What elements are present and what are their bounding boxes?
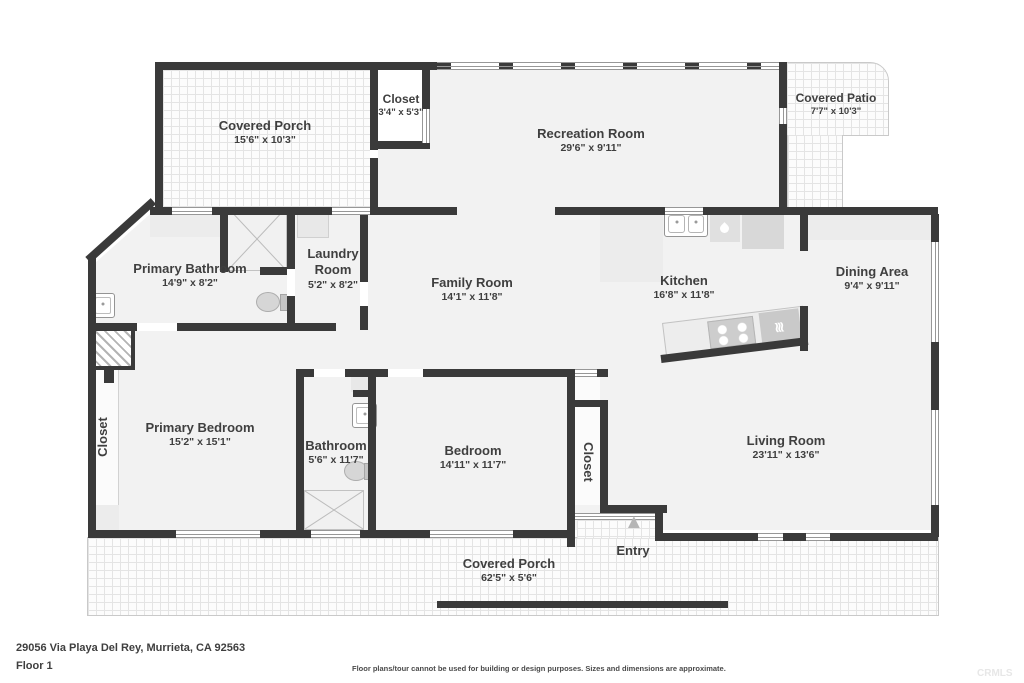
room-label-kitchen: Kitchen 16'8" x 11'8" (634, 273, 734, 302)
bathtub-icon (304, 490, 364, 530)
closet-cabinet (96, 505, 119, 531)
wall (567, 505, 575, 547)
wall (423, 369, 575, 377)
watermark: CRMLS (977, 668, 1013, 679)
wall (800, 207, 808, 251)
window (176, 530, 260, 538)
window (931, 410, 939, 505)
wall (104, 369, 114, 383)
floor-label: Floor 1 (16, 660, 53, 672)
patio-edge (842, 135, 888, 136)
door-opening (388, 369, 423, 377)
toilet-icon (256, 292, 280, 312)
kitchen-counter (600, 215, 663, 282)
wall (600, 407, 608, 508)
cooktop-waves-icon: ≋ (770, 320, 788, 334)
room-label-closet-bedroom: Closet (580, 430, 596, 494)
wall (555, 207, 667, 215)
wall (513, 530, 575, 538)
refrigerator-icon (742, 215, 784, 249)
window (806, 533, 830, 541)
wall (177, 323, 294, 331)
wall (655, 533, 938, 541)
window (311, 530, 360, 538)
window (430, 530, 513, 538)
room-label-primary-bathroom: Primary Bathroom 14'9" x 8'2" (90, 261, 290, 290)
wall (575, 400, 608, 407)
door-opening (370, 150, 378, 158)
door-opening (314, 369, 345, 377)
wall (703, 207, 938, 215)
wall (597, 369, 608, 377)
window (931, 242, 939, 342)
wall (88, 530, 176, 538)
covered-patio-tile (787, 135, 842, 207)
wall (931, 342, 939, 410)
wall (155, 62, 438, 70)
wall (88, 258, 96, 530)
entry-arrow-icon: ▲ (624, 512, 644, 532)
window (665, 207, 703, 215)
window (758, 533, 783, 541)
room-label-family-room: Family Room 14'1" x 11'8" (372, 275, 572, 304)
wall (88, 323, 137, 331)
room-label-covered-porch-bottom: Covered Porch 62'5" x 5'6" (409, 556, 609, 585)
floor-plan: ≋ ▲ Covered Porch 15'6" x 10'3" Closet 3… (0, 0, 1024, 683)
window (575, 369, 597, 377)
room-label-laundry-room: Laundry Room 5'2" x 8'2" (293, 246, 373, 292)
patio-edge (842, 135, 843, 207)
wall (353, 390, 376, 397)
dining-cabinets (808, 215, 931, 240)
window (172, 207, 212, 215)
wall (345, 369, 388, 377)
room-label-bedroom: Bedroom 14'11" x 11'7" (413, 443, 533, 472)
wall (360, 530, 430, 538)
address-text: 29056 Via Playa Del Rey, Murrieta, CA 92… (16, 642, 245, 654)
wall (370, 141, 430, 149)
room-label-recreation-room: Recreation Room 29'6" x 9'11" (491, 126, 691, 155)
wall (260, 530, 311, 538)
room-label-primary-bedroom: Primary Bedroom 15'2" x 15'1" (100, 420, 300, 449)
floor-plan-page: ≋ ▲ Covered Porch 15'6" x 10'3" Closet 3… (0, 0, 1024, 683)
wall (800, 306, 808, 351)
room-label-covered-porch-top: Covered Porch 15'6" x 10'3" (165, 118, 365, 147)
window (332, 207, 370, 215)
wall (155, 62, 163, 208)
room-label-dining-area: Dining Area 9'4" x 9'11" (812, 264, 932, 293)
wall (779, 124, 787, 214)
door-opening (137, 323, 177, 331)
room-label-living-room: Living Room 23'11" x 13'6" (706, 433, 866, 462)
wall (296, 369, 314, 377)
wall (567, 377, 575, 508)
wall (931, 214, 939, 242)
disclaimer-text: Floor plans/tour cannot be used for buil… (352, 664, 726, 673)
porch-step (437, 601, 728, 608)
window-band (437, 62, 779, 70)
wall (294, 323, 336, 331)
dishwasher-icon (710, 215, 740, 242)
wall (655, 513, 663, 540)
room-label-bathroom: Bathroom 5'6" x 11'7" (286, 438, 386, 467)
room-label-covered-patio: Covered Patio 7'7" x 10'3" (776, 91, 896, 118)
room-label-closet-top: Closet 3'4" x 5'3" (361, 92, 441, 119)
wall (360, 306, 368, 330)
wall (370, 158, 378, 208)
